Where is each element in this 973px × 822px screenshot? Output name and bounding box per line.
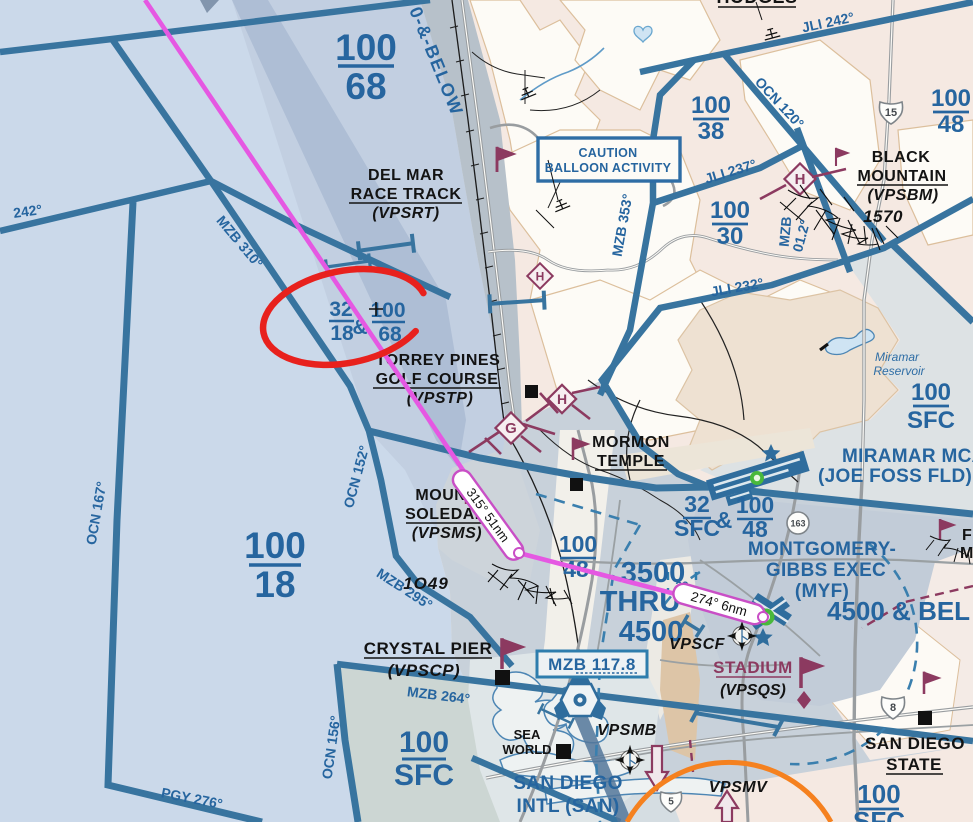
- svg-text:100: 100: [559, 531, 597, 557]
- svg-text:100: 100: [736, 492, 774, 518]
- svg-text:WORLD: WORLD: [502, 742, 551, 757]
- svg-text:SFC: SFC: [907, 407, 955, 434]
- svg-text:30: 30: [717, 223, 744, 250]
- svg-text:CAUTION: CAUTION: [578, 146, 637, 160]
- svg-text:STATE: STATE: [886, 755, 942, 774]
- svg-text:MONTGOMERY-: MONTGOMERY-: [748, 539, 896, 560]
- svg-text:MOUNTAIN: MOUNTAIN: [857, 168, 946, 185]
- svg-text:1570: 1570: [863, 207, 903, 226]
- svg-text:GOLF COURSE: GOLF COURSE: [376, 371, 499, 388]
- svg-text:(VPSRT): (VPSRT): [372, 205, 439, 222]
- svg-text:(VPSCP): (VPSCP): [388, 661, 460, 680]
- svg-text:&: &: [716, 507, 733, 533]
- svg-text:MIRAMAR MCA: MIRAMAR MCA: [842, 446, 973, 467]
- svg-text:BALLOON ACTIVITY: BALLOON ACTIVITY: [545, 161, 672, 175]
- svg-text:GIBBS EXEC: GIBBS EXEC: [766, 560, 886, 581]
- svg-text:TEMPLE: TEMPLE: [597, 453, 665, 470]
- svg-text:100: 100: [335, 27, 397, 68]
- svg-text:15: 15: [885, 107, 897, 119]
- svg-text:100: 100: [931, 85, 971, 112]
- svg-text:MZB: MZB: [776, 216, 795, 248]
- svg-text:100: 100: [399, 726, 449, 759]
- svg-text:Miramar: Miramar: [875, 350, 920, 364]
- svg-text:INTL (SAN): INTL (SAN): [517, 796, 620, 817]
- svg-text:8: 8: [890, 702, 896, 714]
- svg-text:RACE TRACK: RACE TRACK: [351, 186, 462, 203]
- svg-text:100: 100: [244, 525, 306, 566]
- svg-text:G: G: [505, 420, 517, 437]
- svg-text:SAN DIEGO: SAN DIEGO: [865, 734, 965, 753]
- svg-text:H: H: [557, 391, 567, 407]
- svg-text:68: 68: [345, 66, 386, 107]
- svg-text:100: 100: [710, 197, 750, 224]
- svg-text:Reservoir: Reservoir: [873, 364, 925, 378]
- svg-text:163: 163: [790, 519, 805, 529]
- svg-text:BLACK: BLACK: [872, 149, 931, 166]
- svg-text:CRYSTAL PIER: CRYSTAL PIER: [364, 639, 492, 658]
- svg-text:(VPSQS): (VPSQS): [720, 682, 786, 699]
- svg-text:(VPSBM): (VPSBM): [867, 187, 938, 204]
- svg-text:(JOE FOSS FLD): (JOE FOSS FLD): [818, 466, 972, 487]
- svg-text:(MYF): (MYF): [795, 581, 849, 602]
- svg-text:HODGES: HODGES: [716, 0, 797, 7]
- svg-text:VPSMV: VPSMV: [709, 779, 768, 796]
- svg-text:48: 48: [938, 111, 965, 138]
- svg-text:5: 5: [668, 797, 674, 808]
- svg-text:H: H: [536, 270, 545, 284]
- svg-text:MZB 117.8: MZB 117.8: [548, 655, 636, 674]
- svg-text:SEA: SEA: [514, 727, 541, 742]
- svg-text:MORMON: MORMON: [592, 434, 670, 451]
- svg-text:M: M: [960, 545, 973, 562]
- svg-text:100: 100: [911, 379, 951, 406]
- svg-text:100: 100: [691, 92, 731, 119]
- svg-text:38: 38: [698, 118, 725, 145]
- svg-text:(VPSMS): (VPSMS): [412, 525, 482, 542]
- svg-text:32: 32: [684, 491, 710, 517]
- svg-text:100: 100: [857, 779, 900, 809]
- svg-text:VPSCF: VPSCF: [669, 636, 726, 653]
- svg-text:18: 18: [330, 322, 354, 345]
- svg-text:DEL MAR: DEL MAR: [368, 167, 444, 184]
- svg-text:STADIUM: STADIUM: [713, 658, 793, 677]
- svg-text:F: F: [962, 527, 972, 544]
- svg-text:VPSMB: VPSMB: [597, 722, 656, 739]
- svg-text:18: 18: [254, 564, 295, 605]
- svg-text:SAN DIEGO: SAN DIEGO: [513, 773, 622, 794]
- svg-text:SFC: SFC: [394, 759, 454, 792]
